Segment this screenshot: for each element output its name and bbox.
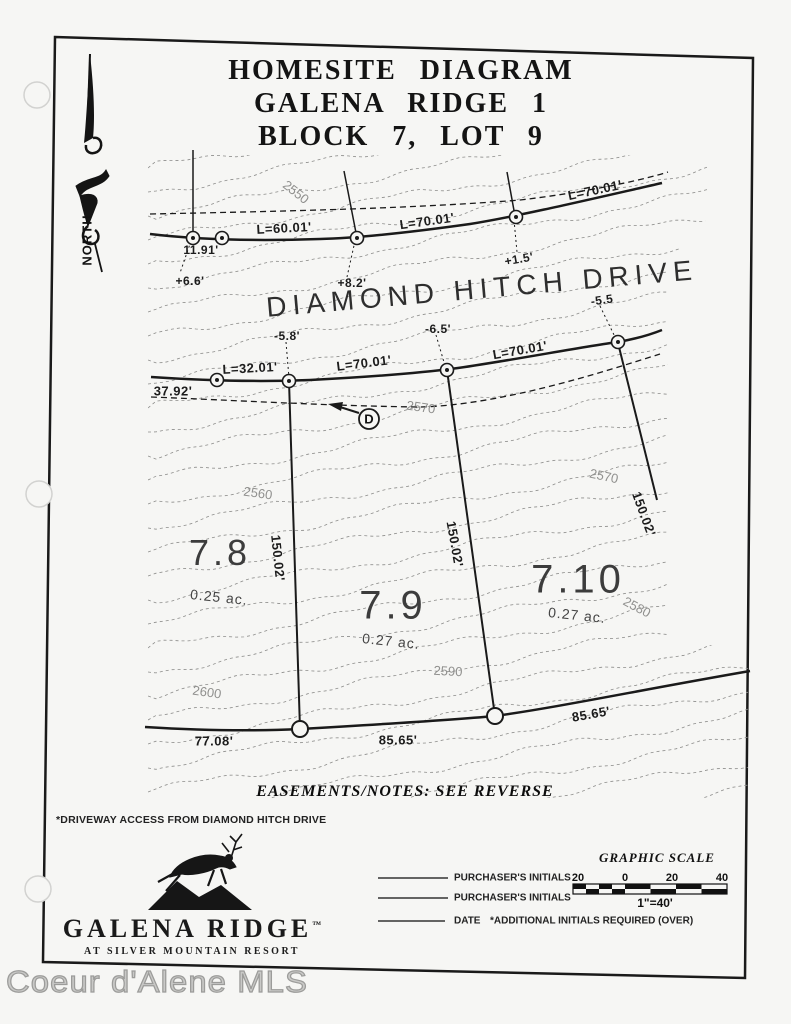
easements-note: EASEMENTS/NOTES: SEE REVERSE — [256, 783, 553, 801]
title-line-2: GALENA RIDGE 1 — [156, 87, 646, 120]
north-label: NORTH — [80, 214, 95, 265]
date-label: DATE — [454, 916, 480, 927]
lot-geometry — [145, 150, 750, 737]
driveway-marker-label: D — [364, 412, 373, 427]
plat-map-artwork — [0, 0, 791, 1024]
scale-ratio: 1"=40' — [637, 896, 673, 910]
contour-2590: 2590 — [433, 663, 463, 679]
driveway-arrowhead — [328, 402, 343, 411]
signature-lines — [378, 878, 448, 921]
graphic-scale-title: GRAPHIC SCALE — [599, 850, 715, 866]
scale-tick-0: 0 — [622, 872, 628, 884]
dist-37-92: 37.92' — [154, 384, 193, 399]
bottom-boundary-line — [145, 671, 750, 730]
len-l-60-01: L=60.01' — [256, 219, 312, 237]
scale-tick-40: 40 — [716, 872, 728, 884]
lot-number-7-8: 7.8 — [189, 532, 251, 574]
scanned-homesite-diagram-page: HOMESITE DIAGRAM GALENA RIDGE 1 BLOCK 7,… — [0, 0, 791, 1024]
trademark-symbol: ™ — [312, 919, 321, 929]
offset-plus-8-2: +8.2' — [337, 276, 366, 290]
title-block: HOMESITE DIAGRAM GALENA RIDGE 1 BLOCK 7,… — [156, 54, 646, 153]
len-l-32-01: L=32.01' — [222, 359, 278, 377]
scale-tick-20-left: 20 — [572, 872, 584, 884]
mls-watermark: Coeur d'Alene MLS — [6, 964, 308, 1000]
lot-number-7-9: 7.9 — [359, 584, 427, 629]
punch-holes — [24, 82, 52, 902]
brand-name-text: GALENA RIDGE — [63, 914, 313, 943]
offset-11-91: 11.91' — [183, 243, 218, 257]
purchasers-initials-label-2: PURCHASER'S INITIALS — [454, 893, 571, 904]
dist-85-65-a: 85.65' — [379, 733, 418, 748]
driveway-arrow — [340, 407, 359, 413]
brand-name: GALENA RIDGE™ — [58, 914, 326, 944]
driveway-access-note: *DRIVEWAY ACCESS FROM DIAMOND HITCH DRIV… — [56, 814, 326, 826]
lot-side-lines — [289, 343, 657, 729]
dist-77-08: 77.08' — [195, 734, 234, 749]
graphic-scale-bar — [573, 884, 727, 894]
lot-number-7-10: 7.10 — [531, 558, 625, 603]
title-line-1: HOMESITE DIAGRAM — [156, 54, 646, 87]
elk-logo-icon — [148, 834, 252, 910]
offset-minus-6-5: -6.5' — [425, 322, 451, 336]
corner-marker — [292, 721, 308, 737]
brand-tagline: AT SILVER MOUNTAIN RESORT — [58, 946, 326, 957]
scale-tick-20-right: 20 — [666, 872, 678, 884]
title-line-3: BLOCK 7, LOT 9 — [156, 120, 646, 153]
additional-initials-note: *ADDITIONAL INITIALS REQUIRED (OVER) — [490, 916, 693, 927]
purchasers-initials-label-1: PURCHASER'S INITIALS — [454, 873, 571, 884]
corner-marker — [487, 708, 503, 724]
offset-plus-6-6: +6.6' — [175, 274, 204, 288]
offset-minus-5-8: -5.8' — [274, 329, 300, 343]
